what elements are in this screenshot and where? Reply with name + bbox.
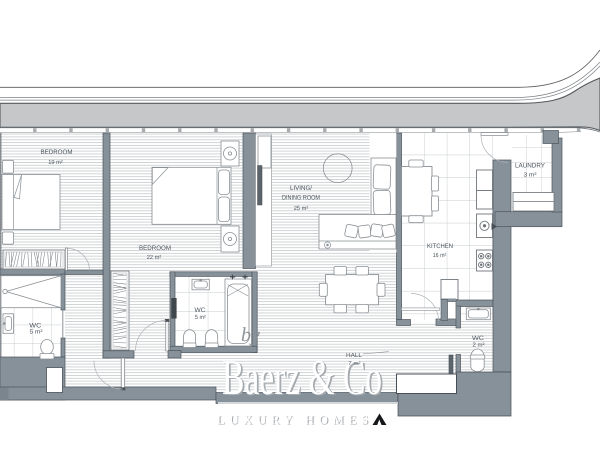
svg-text:16 m²: 16 m² (433, 252, 447, 259)
svg-text:22 m²: 22 m² (147, 254, 162, 261)
svg-text:BEDROOM: BEDROOM (139, 245, 171, 252)
svg-text:5 m²: 5 m² (195, 314, 206, 321)
svg-text:WC: WC (29, 323, 41, 330)
svg-text:HALL: HALL (346, 353, 363, 359)
svg-text:LAUNDRY: LAUNDRY (515, 163, 546, 170)
svg-text:BEDROOM: BEDROOM (41, 149, 73, 156)
svg-text:WC: WC (195, 307, 206, 314)
svg-text:DINING ROOM: DINING ROOM (282, 195, 320, 202)
svg-text:KITCHEN: KITCHEN (427, 243, 453, 250)
svg-text:3 m²: 3 m² (524, 172, 537, 179)
svg-text:7 m²: 7 m² (348, 361, 361, 367)
svg-text:25 m²: 25 m² (294, 205, 309, 212)
svg-text:WC: WC (472, 335, 485, 342)
svg-text:by: by (241, 324, 260, 346)
svg-text:2 m²: 2 m² (473, 343, 485, 349)
svg-text:LUXURY HOMES: LUXURY HOMES (217, 413, 373, 427)
svg-text:5 m²: 5 m² (30, 329, 43, 336)
svg-text:LIVING/: LIVING/ (290, 185, 312, 192)
svg-text:19 m²: 19 m² (48, 159, 63, 166)
